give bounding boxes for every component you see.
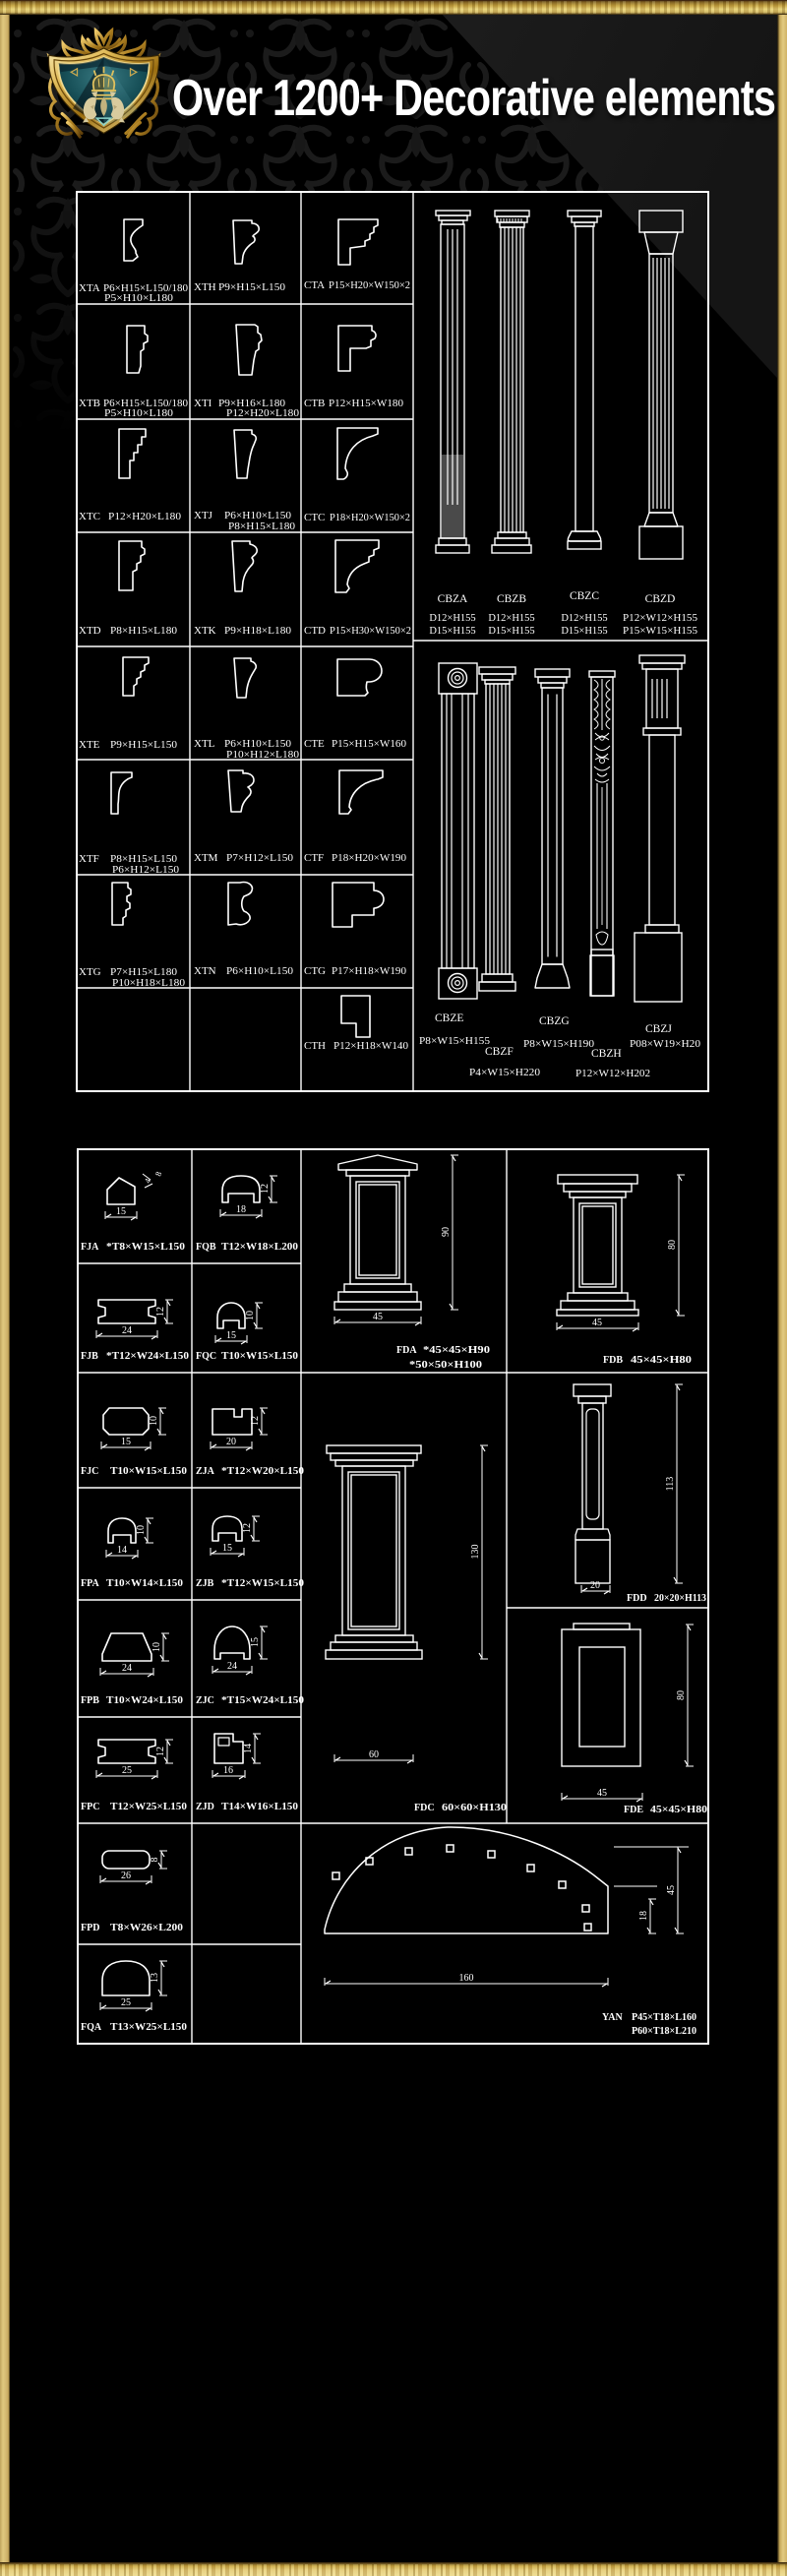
- svg-text:P12×H20×L180: P12×H20×L180: [226, 408, 299, 419]
- svg-text:10: 10: [151, 1642, 162, 1652]
- svg-text:XTM: XTM: [194, 852, 218, 864]
- svg-text:P17×H18×W190: P17×H18×W190: [332, 966, 406, 977]
- svg-text:CBZE: CBZE: [435, 1012, 463, 1024]
- svg-text:YAN: YAN: [602, 2012, 624, 2023]
- svg-text:P6×H10×L150: P6×H10×L150: [226, 966, 293, 977]
- svg-text:CBZA: CBZA: [438, 593, 468, 605]
- svg-text:90: 90: [441, 1227, 452, 1237]
- svg-text:15: 15: [250, 1637, 261, 1647]
- svg-text:*50×50×H100: *50×50×H100: [409, 1360, 482, 1371]
- svg-text:45: 45: [666, 1885, 677, 1895]
- svg-text:CTF: CTF: [304, 852, 324, 864]
- svg-text:80: 80: [667, 1240, 678, 1250]
- svg-text:15: 15: [121, 1437, 131, 1447]
- svg-text:XTG: XTG: [79, 966, 101, 978]
- svg-text:13: 13: [150, 1973, 160, 1983]
- svg-text:P15×H20×W150×2: P15×H20×W150×2: [329, 280, 410, 291]
- svg-text:FDC: FDC: [414, 1803, 435, 1813]
- svg-text:14: 14: [243, 1744, 254, 1753]
- svg-text:FPB: FPB: [81, 1695, 99, 1706]
- svg-text:FJC: FJC: [81, 1466, 98, 1477]
- svg-text:P7×H12×L150: P7×H12×L150: [226, 853, 293, 864]
- svg-text:FQB: FQB: [196, 1242, 216, 1253]
- svg-text:CTC: CTC: [304, 512, 325, 523]
- svg-text:CBZD: CBZD: [645, 593, 676, 605]
- svg-text:FDA: FDA: [396, 1345, 417, 1356]
- svg-text:CTG: CTG: [304, 965, 326, 977]
- svg-text:P8×H15×L180: P8×H15×L180: [110, 626, 177, 637]
- svg-text:CTA: CTA: [304, 279, 325, 291]
- svg-text:XTN: XTN: [194, 965, 216, 977]
- svg-text:15: 15: [222, 1543, 232, 1554]
- svg-text:ZJA: ZJA: [196, 1466, 215, 1477]
- svg-text:FPC: FPC: [81, 1802, 99, 1812]
- svg-text:XTC: XTC: [79, 511, 100, 522]
- svg-text:P18×H20×W150×2: P18×H20×W150×2: [330, 513, 410, 523]
- svg-text:XTH: XTH: [194, 281, 216, 293]
- svg-text:80: 80: [676, 1690, 687, 1700]
- svg-text:45: 45: [597, 1788, 607, 1799]
- svg-text:P12×H18×W140: P12×H18×W140: [333, 1041, 408, 1052]
- svg-text:45×45×H80: 45×45×H80: [650, 1805, 707, 1815]
- svg-text:ZJB: ZJB: [196, 1578, 214, 1589]
- svg-text:60: 60: [369, 1749, 379, 1760]
- svg-text:CBZB: CBZB: [497, 593, 526, 605]
- svg-text:T10×W24×L150: T10×W24×L150: [106, 1695, 183, 1706]
- svg-text:T13×W25×L150: T13×W25×L150: [110, 2022, 187, 2033]
- svg-text:CBZC: CBZC: [570, 590, 599, 602]
- svg-text:P60×T18×L210: P60×T18×L210: [632, 2026, 696, 2037]
- svg-text:10: 10: [149, 1416, 159, 1426]
- svg-text:24: 24: [227, 1661, 237, 1672]
- svg-text:24: 24: [122, 1663, 132, 1674]
- svg-text:160: 160: [459, 1973, 474, 1984]
- svg-text:FDD: FDD: [627, 1593, 647, 1604]
- svg-text:18: 18: [638, 1911, 649, 1921]
- svg-text:P9×H15×L150: P9×H15×L150: [218, 282, 285, 293]
- svg-text:12: 12: [242, 1523, 253, 1533]
- svg-text:P10×H18×L180: P10×H18×L180: [112, 978, 185, 989]
- svg-text:D12×H155: D12×H155: [488, 613, 534, 624]
- svg-text:CTE: CTE: [304, 738, 325, 750]
- svg-text:P12×W12×H202: P12×W12×H202: [575, 1069, 650, 1079]
- svg-text:FDB: FDB: [603, 1355, 623, 1366]
- svg-text:18: 18: [236, 1204, 246, 1215]
- svg-text:T12×W18×L200: T12×W18×L200: [221, 1242, 298, 1253]
- svg-text:CBZF: CBZF: [485, 1046, 514, 1058]
- svg-text:P8×W15×H190: P8×W15×H190: [523, 1039, 594, 1050]
- svg-text:12: 12: [250, 1416, 261, 1426]
- svg-text:XTF: XTF: [79, 853, 99, 865]
- svg-text:113: 113: [665, 1477, 676, 1492]
- svg-text:P6×H10×L150: P6×H10×L150: [224, 511, 291, 521]
- svg-text:P5×H10×L180: P5×H10×L180: [104, 293, 173, 304]
- svg-text:CTD: CTD: [304, 625, 326, 637]
- svg-text:14: 14: [117, 1545, 127, 1556]
- svg-text:20: 20: [590, 1580, 600, 1591]
- svg-text:16: 16: [223, 1765, 233, 1776]
- svg-text:XTA: XTA: [79, 282, 100, 294]
- svg-text:D15×H155: D15×H155: [488, 626, 534, 637]
- svg-text:8: 8: [150, 1858, 160, 1863]
- svg-text:FDE: FDE: [624, 1805, 643, 1815]
- svg-text:P15×H15×W160: P15×H15×W160: [332, 739, 406, 750]
- svg-text:XTD: XTD: [79, 625, 101, 637]
- svg-text:CTB: CTB: [304, 398, 325, 409]
- svg-text:P4×W15×H220: P4×W15×H220: [469, 1068, 540, 1078]
- svg-text:ZJD: ZJD: [196, 1802, 214, 1812]
- svg-text:P10×H12×L180: P10×H12×L180: [226, 750, 299, 761]
- svg-text:*45×45×H90: *45×45×H90: [423, 1345, 490, 1356]
- svg-text:T14×W16×L150: T14×W16×L150: [221, 1802, 298, 1812]
- svg-text:P18×H20×W190: P18×H20×W190: [332, 853, 406, 864]
- svg-text:P12×H15×W180: P12×H15×W180: [329, 399, 403, 409]
- svg-text:P12×W12×H155: P12×W12×H155: [623, 613, 697, 624]
- svg-text:FPA: FPA: [81, 1578, 99, 1589]
- svg-text:24: 24: [122, 1325, 132, 1336]
- svg-text:P9×H18×L180: P9×H18×L180: [224, 626, 291, 637]
- svg-text:XTE: XTE: [79, 739, 100, 751]
- svg-text:XTL: XTL: [194, 738, 215, 750]
- svg-text:12: 12: [155, 1747, 166, 1756]
- svg-text:CBZH: CBZH: [591, 1048, 622, 1060]
- svg-text:P08×W19×H20: P08×W19×H20: [630, 1039, 700, 1050]
- svg-text:60×60×H130: 60×60×H130: [442, 1803, 507, 1813]
- svg-text:XTK: XTK: [194, 625, 216, 637]
- svg-text:XTB: XTB: [79, 398, 100, 409]
- svg-text:T10×W15×L150: T10×W15×L150: [110, 1466, 187, 1477]
- svg-text:15: 15: [116, 1206, 126, 1217]
- svg-text:10: 10: [245, 1311, 256, 1320]
- svg-text:D15×H155: D15×H155: [429, 626, 475, 637]
- svg-text:12: 12: [155, 1307, 166, 1317]
- svg-text:25: 25: [121, 1997, 131, 2008]
- svg-text:*T15×W24×L150: *T15×W24×L150: [221, 1695, 304, 1706]
- svg-text:130: 130: [470, 1545, 481, 1560]
- svg-text:P8×W15×H155: P8×W15×H155: [419, 1036, 490, 1047]
- svg-text:XTJ: XTJ: [194, 510, 213, 521]
- svg-text:P45×T18×L160: P45×T18×L160: [632, 2012, 696, 2023]
- svg-text:FJB: FJB: [81, 1351, 98, 1362]
- svg-text:25: 25: [122, 1765, 132, 1776]
- svg-text:P9×H15×L150: P9×H15×L150: [110, 740, 177, 751]
- svg-text:T10×W14×L150: T10×W14×L150: [106, 1578, 183, 1589]
- svg-text:P6×H10×L150: P6×H10×L150: [224, 739, 291, 750]
- svg-text:P15×W15×H155: P15×W15×H155: [623, 626, 697, 637]
- svg-text:*T12×W15×L150: *T12×W15×L150: [221, 1578, 304, 1589]
- svg-text:T12×W25×L150: T12×W25×L150: [110, 1802, 187, 1812]
- svg-text:10: 10: [136, 1525, 147, 1535]
- svg-text:45×45×H80: 45×45×H80: [631, 1355, 692, 1366]
- svg-text:P8×H15×L150: P8×H15×L150: [110, 854, 177, 865]
- svg-text:D15×H155: D15×H155: [561, 626, 607, 637]
- svg-text:FQC: FQC: [196, 1351, 216, 1362]
- svg-text:*T12×W20×L150: *T12×W20×L150: [221, 1466, 304, 1477]
- svg-text:45: 45: [373, 1312, 383, 1322]
- svg-text:P15×H30×W150×2: P15×H30×W150×2: [330, 626, 411, 637]
- svg-text:FQA: FQA: [81, 2022, 102, 2033]
- svg-text:*T12×W24×L150: *T12×W24×L150: [106, 1351, 189, 1362]
- svg-text:FPD: FPD: [81, 1923, 99, 1933]
- svg-text:P8×H15×L180: P8×H15×L180: [228, 521, 295, 532]
- svg-text:CTH: CTH: [304, 1040, 326, 1052]
- svg-text:8: 8: [152, 1170, 163, 1177]
- svg-text:P6×H12×L150: P6×H12×L150: [112, 865, 179, 876]
- svg-text:15: 15: [226, 1330, 236, 1341]
- svg-text:T8×W26×L200: T8×W26×L200: [110, 1923, 183, 1933]
- svg-text:*T8×W15×L150: *T8×W15×L150: [106, 1242, 185, 1253]
- svg-text:P12×H20×L180: P12×H20×L180: [108, 512, 181, 522]
- svg-text:CBZG: CBZG: [539, 1015, 570, 1027]
- svg-text:CBZJ: CBZJ: [645, 1023, 672, 1035]
- svg-text:T10×W15×L150: T10×W15×L150: [221, 1351, 298, 1362]
- svg-text:XTI: XTI: [194, 398, 212, 409]
- svg-text:20×20×H113: 20×20×H113: [654, 1593, 706, 1604]
- svg-text:D12×H155: D12×H155: [429, 613, 475, 624]
- svg-text:P7×H15×L180: P7×H15×L180: [110, 967, 177, 978]
- svg-text:26: 26: [121, 1871, 131, 1881]
- svg-text:12: 12: [260, 1184, 271, 1194]
- svg-text:45: 45: [592, 1318, 602, 1328]
- svg-text:P5×H10×L180: P5×H10×L180: [104, 408, 173, 419]
- svg-text:20: 20: [226, 1437, 236, 1447]
- svg-text:ZJC: ZJC: [196, 1695, 214, 1706]
- svg-text:FJA: FJA: [81, 1242, 99, 1253]
- svg-text:D12×H155: D12×H155: [561, 613, 607, 624]
